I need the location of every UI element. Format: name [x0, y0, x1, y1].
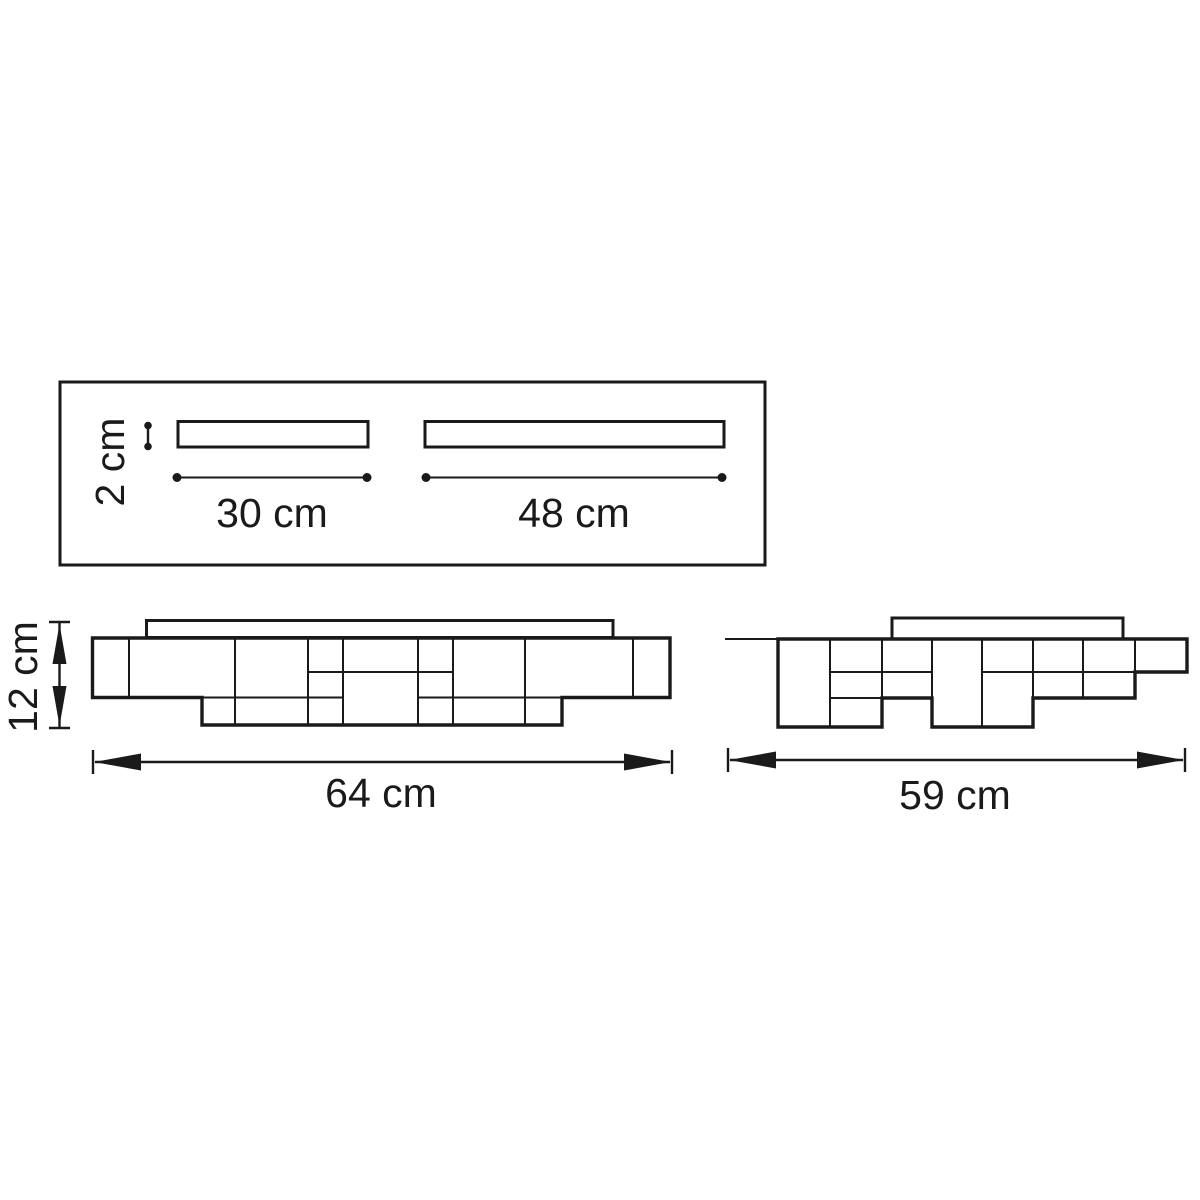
side-width-label: 59 cm [899, 772, 1011, 818]
height-dimension: 12 cm [0, 621, 70, 733]
top-view-outline [60, 382, 765, 565]
front-width-dimension: 64 cm [93, 750, 672, 816]
slot-48-label: 48 cm [518, 490, 630, 536]
side-view: 59 cm [725, 618, 1187, 818]
top-view: 2 cm 30 cm 48 cm [60, 382, 765, 565]
dimension-drawing: 2 cm 30 cm 48 cm [0, 0, 1200, 1200]
height-label: 12 cm [0, 621, 46, 733]
slot-30-label: 30 cm [216, 490, 328, 536]
slot-height-label: 2 cm [87, 418, 133, 507]
front-width-label: 64 cm [325, 770, 437, 816]
side-width-dimension: 59 cm [728, 748, 1185, 818]
front-body-outline [93, 638, 671, 725]
side-canopy-plate [892, 618, 1123, 639]
front-canopy-plate [147, 621, 614, 638]
front-view: 12 cm 64 cm [0, 621, 672, 817]
